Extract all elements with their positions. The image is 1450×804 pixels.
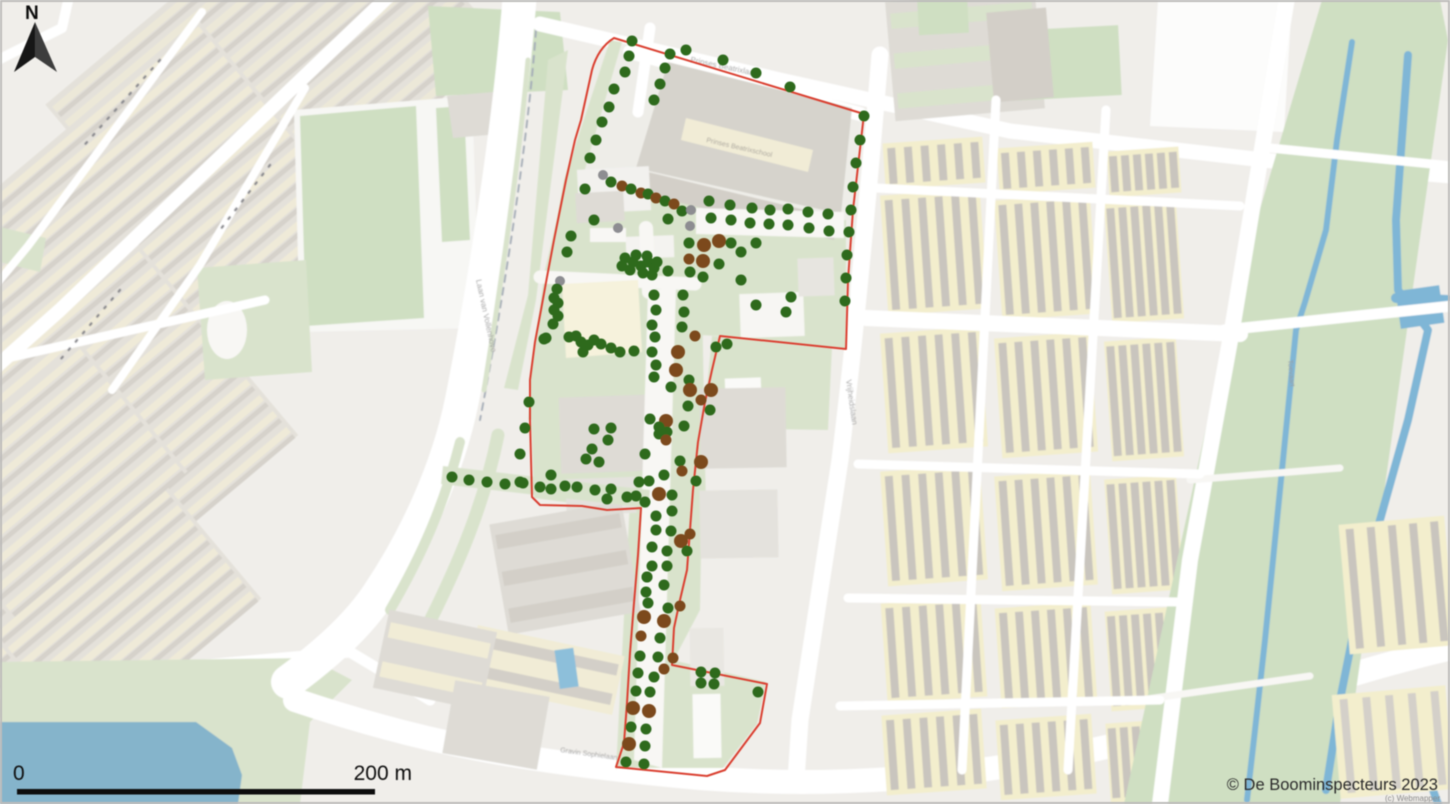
svg-text:0: 0 (13, 762, 25, 785)
svg-text:(c) Webmapper: (c) Webmapper (1385, 794, 1440, 803)
svg-text:N: N (25, 3, 39, 24)
svg-text:© De Boominspecteurs 2023: © De Boominspecteurs 2023 (1227, 776, 1438, 794)
svg-text:200 m: 200 m (354, 762, 412, 785)
